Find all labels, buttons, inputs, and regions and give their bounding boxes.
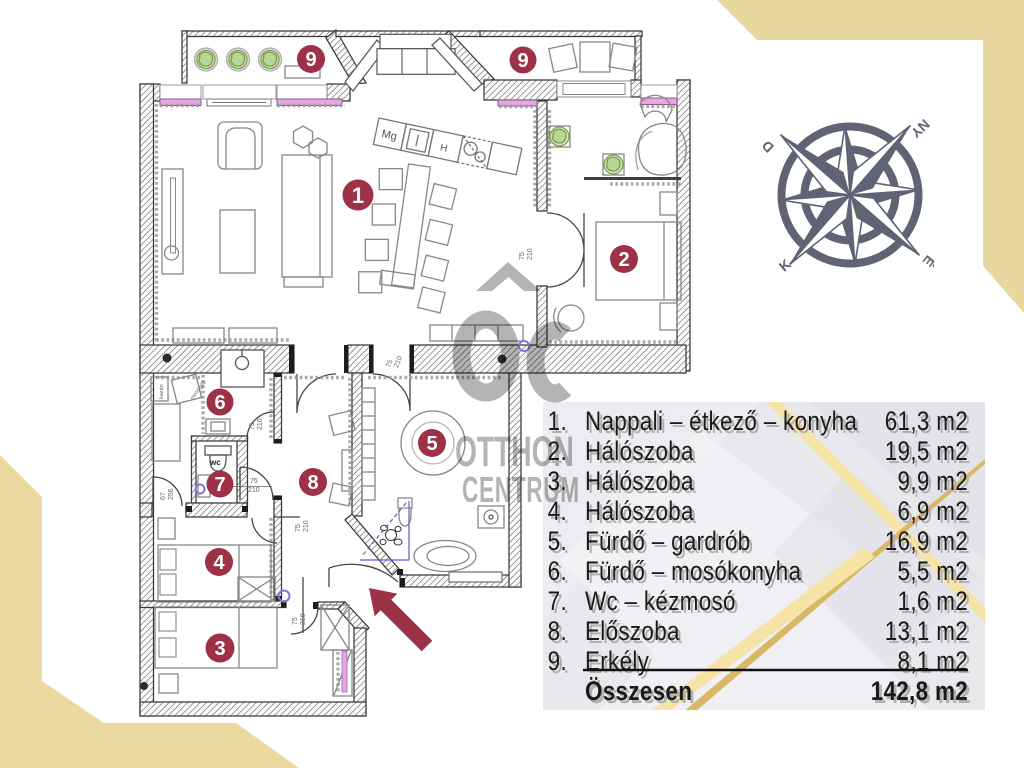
svg-text:4.: 4.: [548, 497, 567, 526]
svg-text:210: 210: [303, 520, 310, 532]
svg-text:K: K: [776, 256, 794, 275]
svg-text:6.: 6.: [548, 557, 567, 586]
svg-text:8.: 8.: [548, 617, 567, 646]
svg-text:19,5 m2: 19,5 m2: [885, 437, 968, 466]
svg-text:Erkély: Erkély: [585, 647, 649, 676]
svg-text:wc: wc: [209, 458, 221, 467]
svg-text:16,9 m2: 16,9 m2: [885, 527, 968, 556]
svg-text:kazán: kazán: [159, 384, 165, 399]
svg-text:75: 75: [250, 478, 258, 485]
svg-text:13,1 m2: 13,1 m2: [885, 617, 968, 646]
svg-text:75: 75: [249, 422, 256, 430]
svg-text:8,1 m2: 8,1 m2: [898, 647, 968, 676]
svg-text:61,3 m2: 61,3 m2: [885, 407, 968, 436]
svg-text:1,6 m2: 1,6 m2: [898, 587, 968, 616]
svg-text:Wc – kézmosó: Wc – kézmosó: [585, 587, 736, 616]
svg-text:5,5 m2: 5,5 m2: [898, 557, 968, 586]
svg-text:4: 4: [213, 552, 225, 574]
svg-text:Hálószoba: Hálószoba: [585, 497, 694, 526]
svg-text:210: 210: [300, 613, 307, 625]
svg-text:256: 256: [168, 488, 175, 500]
svg-text:1: 1: [352, 183, 364, 208]
svg-text:7: 7: [214, 474, 225, 496]
svg-text:75: 75: [519, 252, 526, 260]
svg-text:D: D: [758, 137, 776, 156]
svg-text:NY: NY: [907, 116, 933, 141]
svg-text:5.: 5.: [548, 527, 567, 556]
svg-text:Hálószoba: Hálószoba: [585, 467, 694, 496]
svg-text:2: 2: [618, 249, 629, 271]
svg-text:6: 6: [214, 392, 225, 414]
svg-text:5: 5: [426, 433, 437, 455]
svg-text:142,8 m2: 142,8 m2: [871, 677, 968, 706]
svg-text:Fürdő – gardrób: Fürdő – gardrób: [585, 527, 751, 556]
svg-text:210: 210: [257, 418, 264, 430]
svg-text:É: É: [920, 252, 938, 269]
svg-text:Hálószoba: Hálószoba: [585, 437, 694, 466]
svg-text:Nappali – étkező – konyha: Nappali – étkező – konyha: [585, 407, 857, 436]
svg-text:H: H: [439, 142, 448, 154]
svg-text:7.: 7.: [548, 587, 567, 616]
svg-text:Mg: Mg: [381, 128, 398, 143]
svg-text:9: 9: [305, 49, 316, 71]
svg-text:75: 75: [295, 524, 302, 532]
svg-text:3: 3: [214, 638, 225, 660]
svg-text:8: 8: [307, 472, 318, 494]
svg-text:2.: 2.: [548, 437, 567, 466]
svg-text:210: 210: [527, 248, 534, 260]
svg-text:9: 9: [517, 50, 528, 72]
svg-text:75: 75: [292, 617, 299, 625]
svg-text:6,9 m2: 6,9 m2: [898, 497, 968, 526]
svg-text:Előszoba: Előszoba: [585, 617, 680, 646]
svg-text:67: 67: [160, 492, 167, 500]
svg-text:Fürdő – mosókonyha: Fürdő – mosókonyha: [585, 557, 801, 586]
svg-text:3.: 3.: [548, 467, 567, 496]
svg-text:9.: 9.: [548, 647, 567, 676]
svg-text:1.: 1.: [548, 407, 567, 436]
svg-text:210: 210: [393, 355, 404, 368]
svg-text:Összesen: Összesen: [585, 677, 692, 706]
svg-text:9,9 m2: 9,9 m2: [898, 467, 968, 496]
svg-text:210: 210: [248, 487, 260, 494]
